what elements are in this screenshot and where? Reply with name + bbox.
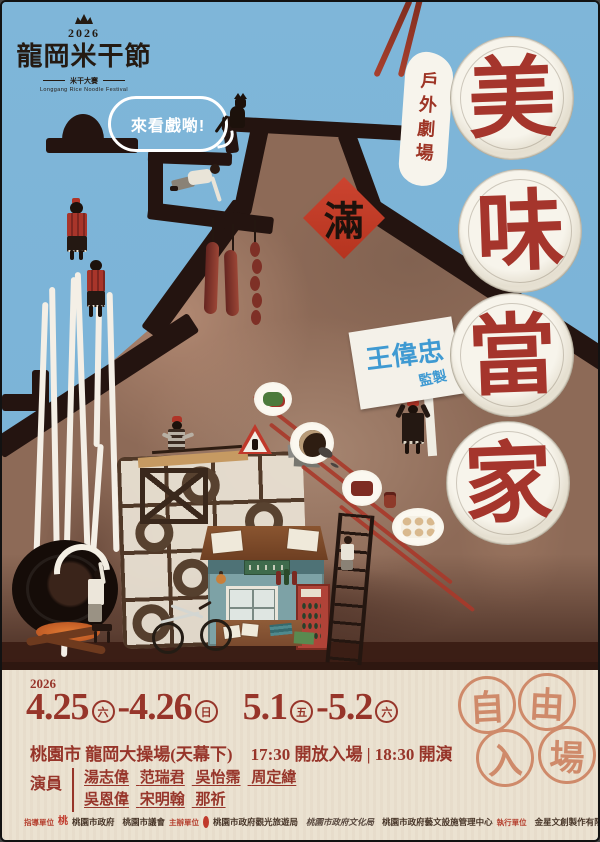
warning-sign <box>238 424 272 454</box>
weekday-badge: 六 <box>375 700 398 723</box>
figure-sign-holder <box>398 400 428 458</box>
cast-name: 湯志偉 <box>84 770 129 786</box>
fu-char: 滿 <box>324 189 364 247</box>
cast-line-2: 吳恩偉 宋明翰 那祈 <box>84 790 303 812</box>
free-entry-char: 場 <box>537 725 597 785</box>
time-start: 18:30 開演 <box>375 745 453 764</box>
counter-paper <box>241 623 258 637</box>
date-end-1: 4.26 <box>129 688 192 726</box>
date-dash: - <box>316 688 328 726</box>
tourism-bureau-icon <box>203 816 209 828</box>
free-entry-char: 入 <box>475 728 535 788</box>
crown-icon <box>75 14 93 24</box>
title-char: 家 <box>462 437 553 528</box>
dish-buns <box>392 508 444 546</box>
footer-credits: 指導單位 桃 桃園市政府 桃園市議會 主辦單位 桃園市政府觀光旅遊局 桃園市政府… <box>24 816 582 828</box>
title-char: 味 <box>474 185 565 276</box>
free-entry-char: 由 <box>517 672 578 733</box>
cat-icon <box>235 98 246 108</box>
org-name: 金星文創製作有限公司 <box>535 816 600 828</box>
cat-icon <box>230 106 245 128</box>
org-name: 桃園市政府藝文設施管理中心 <box>382 816 493 828</box>
speech-bubble-text: 來看戲喲! <box>131 112 205 136</box>
info-panel: 2026 4.25 六 - 4.26 日 5.1 五 - 5.2 六 桃園市 龍… <box>2 670 600 840</box>
venue-time-row: 桃園市 龍岡大操場(天幕下) 17:30 開放入場 | 18:30 開演 <box>30 740 453 765</box>
stone-ring <box>172 558 211 597</box>
figure-noodle-maker <box>160 416 200 460</box>
awning-poster <box>287 528 319 551</box>
date-start-1: 4.25 <box>26 688 89 726</box>
striped-mat <box>269 623 292 636</box>
meat-hook <box>254 220 256 244</box>
bicycle-icon <box>200 619 232 651</box>
cast-label: 演員 <box>30 768 62 794</box>
logo-dash <box>43 80 65 81</box>
cast-name: 吳恩偉 <box>84 792 129 808</box>
weekday-badge: 日 <box>195 700 218 723</box>
figure-villager-climbing <box>84 260 108 318</box>
logo-subtitle-en: Longgang Rice Noodle Festival <box>14 87 154 93</box>
title-plate: 家 <box>446 421 570 545</box>
date-start-2: 5.1 <box>243 688 288 726</box>
org-name: 桃園市政府 <box>72 816 115 828</box>
bicycle-icon <box>152 622 184 654</box>
weekday-badge: 六 <box>92 700 115 723</box>
title-char: 美 <box>466 52 557 143</box>
speech-bubble: 來看戲喲! <box>108 96 228 152</box>
sausage <box>204 242 220 314</box>
org-name: 桃園市政府觀光旅遊局 <box>213 816 298 828</box>
org-role-label: 執行單位 <box>497 817 527 828</box>
awning-poster <box>211 530 243 553</box>
sausage <box>224 250 239 316</box>
hanging-lamp <box>216 574 226 584</box>
time-open: 17:30 開放入場 <box>251 745 363 764</box>
figure-villager-standing <box>64 198 90 260</box>
cast-name: 宋明翰 <box>140 792 185 808</box>
logo-dash <box>103 80 125 81</box>
cast-name: 范瑞君 <box>140 770 185 786</box>
sausage-links <box>252 293 262 308</box>
green-card <box>294 631 315 644</box>
free-entry-char: 自 <box>457 675 518 736</box>
meat-hook <box>212 218 214 244</box>
org-name: 桃園市政府文化局 <box>306 816 374 828</box>
taoyuan-gov-icon: 桃 <box>58 817 68 827</box>
cast-line-1: 湯志偉 范瑞君 吳怡霈 周定緯 <box>84 768 303 790</box>
meat-hook <box>232 224 234 252</box>
cast-row: 演員 湯志偉 范瑞君 吳怡霈 周定緯 吳恩偉 宋明翰 那祈 <box>30 768 303 812</box>
title-char: 當 <box>466 309 557 400</box>
tea-cup <box>384 492 396 508</box>
figure-man-climbing-over <box>170 162 230 212</box>
title-plate: 味 <box>458 169 582 293</box>
weekday-badge: 五 <box>290 700 313 723</box>
date-end-2: 5.2 <box>328 688 373 726</box>
venue-text: 桃園市 龍岡大操場(天幕下) <box>30 740 233 765</box>
date-dash: - <box>118 688 130 726</box>
warning-sign-figure <box>252 439 258 450</box>
cast-name: 吳怡霈 <box>196 770 241 786</box>
scaffold-frame <box>140 468 208 524</box>
org-name: 桃園市議會 <box>123 816 166 828</box>
figure-ladder-climber <box>336 536 362 572</box>
org-role-label: 指導單位 <box>24 817 54 828</box>
festival-logo: 2026 龍岡米干節 米干大賽 Longgang Rice Noodle Fes… <box>14 14 154 93</box>
dish-sliced-meat <box>342 470 382 506</box>
sausage-links <box>250 242 260 257</box>
logo-title: 龍岡米干節 <box>14 41 154 74</box>
outdoor-stage-label: 戶外劇場 <box>397 50 454 187</box>
poster-root: 來看戲喲! 戶外劇場 滿 <box>0 0 600 842</box>
dish-vegetables <box>254 382 292 416</box>
sausage-links <box>251 310 261 325</box>
sausage-links <box>250 276 260 291</box>
date-row: 4.25 六 - 4.26 日 5.1 五 - 5.2 六 <box>26 688 401 726</box>
logo-year: 2026 <box>14 26 154 41</box>
cast-name: 那祈 <box>196 792 226 808</box>
logo-subtitle: 米干大賽 <box>70 76 98 86</box>
title-plate: 當 <box>450 293 574 417</box>
sausage-links <box>252 259 262 274</box>
producer-sign: 王偉忠 監製 <box>349 316 464 409</box>
org-role-label: 主辦單位 <box>169 817 199 828</box>
time-divider: | <box>367 745 371 764</box>
title-plate: 美 <box>450 36 574 160</box>
cast-name: 周定緯 <box>251 770 296 786</box>
outdoor-stage-text: 戶外劇場 <box>410 70 443 168</box>
figure-pot-worker <box>78 562 118 646</box>
